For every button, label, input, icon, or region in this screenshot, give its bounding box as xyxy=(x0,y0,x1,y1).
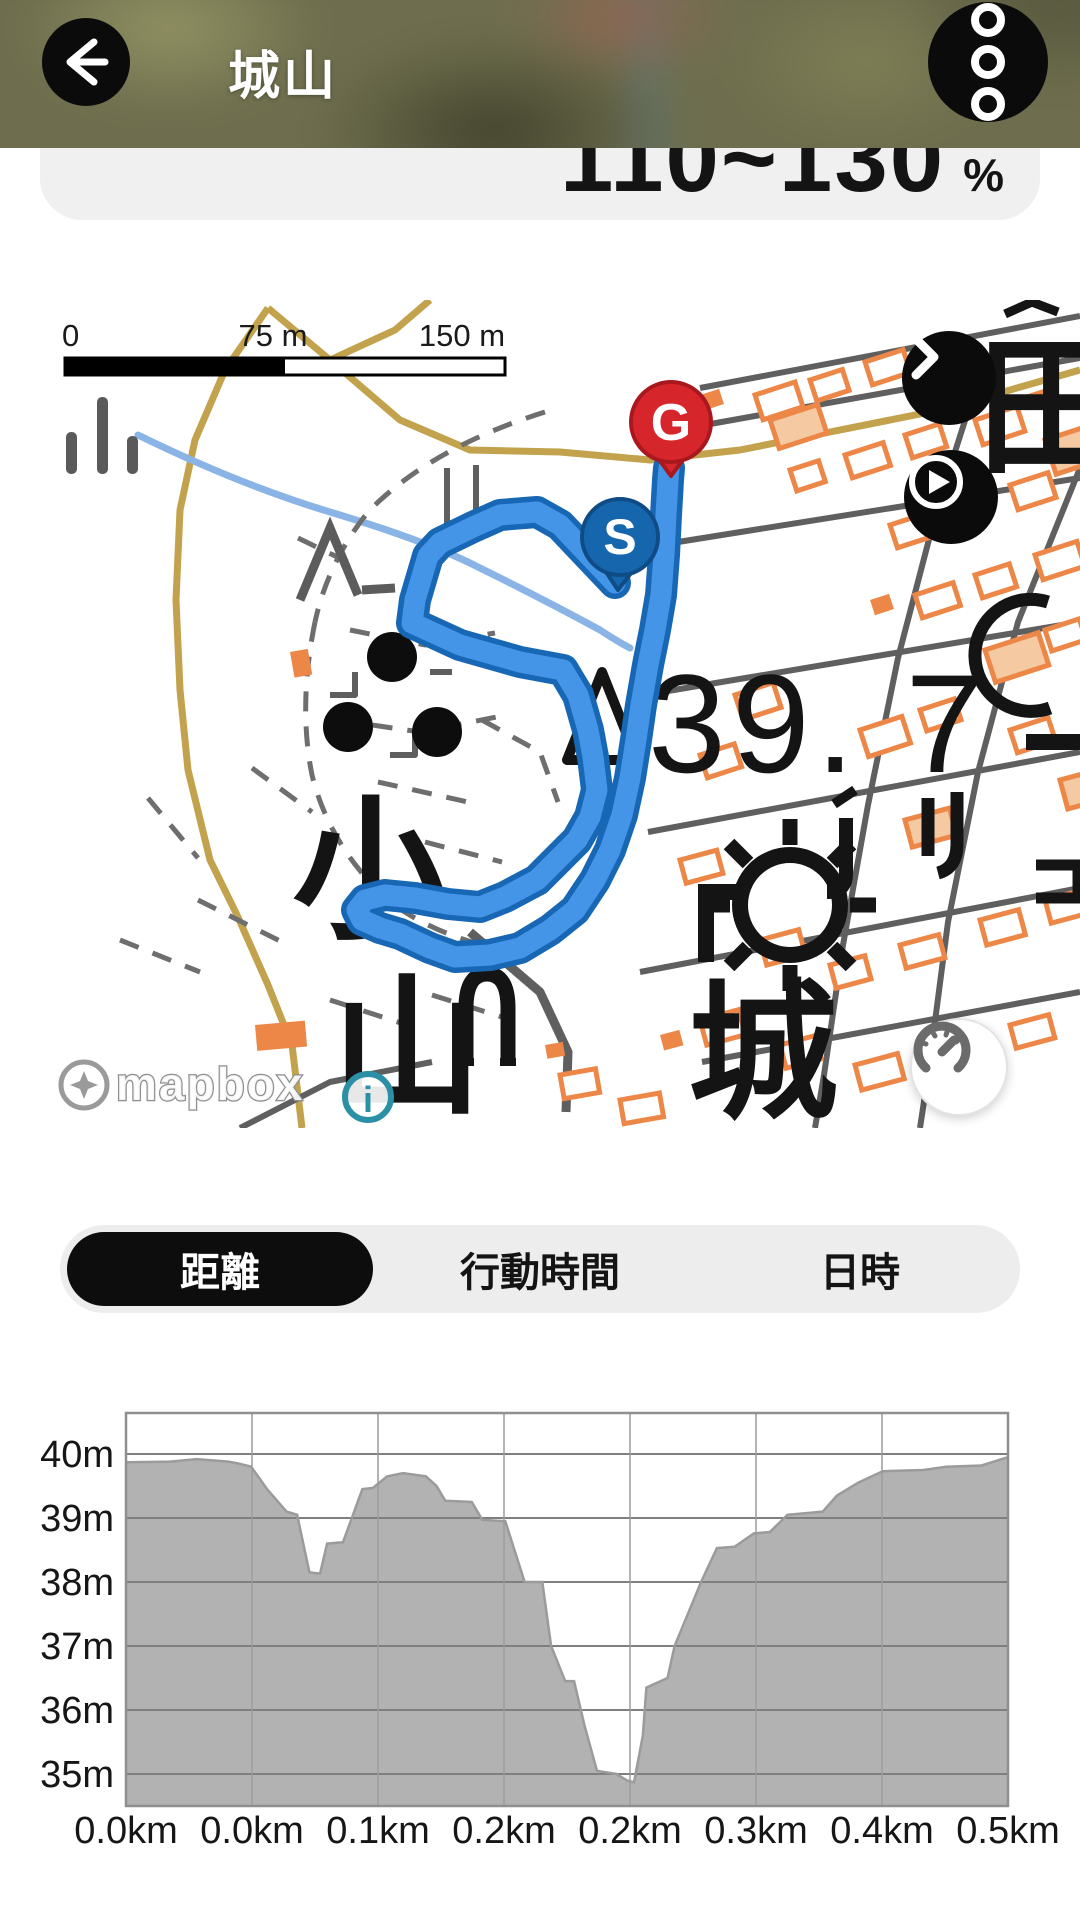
scale-end-label: 150 m xyxy=(419,318,505,353)
page-title: 城山 xyxy=(228,34,338,109)
x-axis-tick-label: 0.2km xyxy=(578,1810,681,1852)
menu-button[interactable] xyxy=(928,2,1048,122)
arrow-left-icon xyxy=(42,18,130,106)
elevation-area xyxy=(126,1457,1008,1806)
y-axis-tick-label: 35m xyxy=(40,1754,114,1796)
y-axis-tick-label: 39m xyxy=(40,1498,114,1540)
x-axis-tick-label: 0.0km xyxy=(74,1810,177,1852)
x-axis-tick-label: 0.5km xyxy=(956,1810,1059,1852)
header-cover-photo xyxy=(0,0,1080,148)
scale-mid-label: 75 m xyxy=(239,318,308,353)
mapbox-wordmark: mapbox xyxy=(116,1058,304,1110)
y-axis-tick-label: 38m xyxy=(40,1562,114,1604)
map: 39. 7 小 山 城 田 G S 0 75 m 150 m xyxy=(0,300,1080,1128)
tab-datetime[interactable]: 日時 xyxy=(707,1232,1013,1306)
back-button[interactable] xyxy=(42,18,130,106)
scale-zero-label: 0 xyxy=(62,318,79,353)
y-axis-tick-label: 36m xyxy=(40,1690,114,1732)
info-icon: i xyxy=(363,1079,373,1120)
x-axis-tick-label: 0.4km xyxy=(830,1810,933,1852)
stat-unit: % xyxy=(963,148,1004,202)
elevation-chart[interactable]: 40m39m38m37m36m35m0.0km0.0km0.1km0.2km0.… xyxy=(0,1400,1080,1900)
map-scale-bar: 0 75 m 150 m xyxy=(62,318,505,375)
y-axis-tick-label: 40m xyxy=(40,1434,114,1476)
map-ruin-bars-icon xyxy=(66,397,138,474)
stat-card: 110~130 % xyxy=(40,148,1040,220)
goal-marker-label: G xyxy=(651,394,691,452)
tab-distance[interactable]: 距離 xyxy=(67,1232,373,1306)
expand-map-button[interactable] xyxy=(902,331,996,425)
tab-moving-time[interactable]: 行動時間 xyxy=(387,1232,693,1306)
kebab-menu-icon xyxy=(971,3,1005,37)
speedometer-icon xyxy=(912,1020,972,1080)
pace-gauge-button[interactable] xyxy=(910,1018,1008,1116)
chart-mode-tabs: 距離 行動時間 日時 xyxy=(60,1225,1020,1313)
stat-value: 110~130 xyxy=(560,148,945,214)
playback-button[interactable] xyxy=(904,450,998,544)
y-axis-tick-label: 37m xyxy=(40,1626,114,1668)
x-axis-tick-label: 0.2km xyxy=(452,1810,555,1852)
header: 城山 xyxy=(0,0,1080,148)
map-info-button[interactable]: i xyxy=(345,1074,391,1120)
x-axis-tick-label: 0.0km xyxy=(200,1810,303,1852)
map-label-shiro: 城 xyxy=(688,969,838,1128)
chevron-right-icon xyxy=(902,331,946,383)
x-axis-tick-label: 0.3km xyxy=(704,1810,807,1852)
spot-elevation-label: 39. 7 xyxy=(648,645,989,802)
map-canvas[interactable]: 39. 7 小 山 城 田 G S 0 75 m 150 m xyxy=(0,300,1080,1128)
map-label-ta: 田 xyxy=(977,324,1080,492)
x-axis-tick-label: 0.1km xyxy=(326,1810,429,1852)
mapbox-logo[interactable]: mapbox xyxy=(61,1058,304,1110)
play-icon xyxy=(904,450,968,514)
start-marker-label: S xyxy=(603,509,636,565)
